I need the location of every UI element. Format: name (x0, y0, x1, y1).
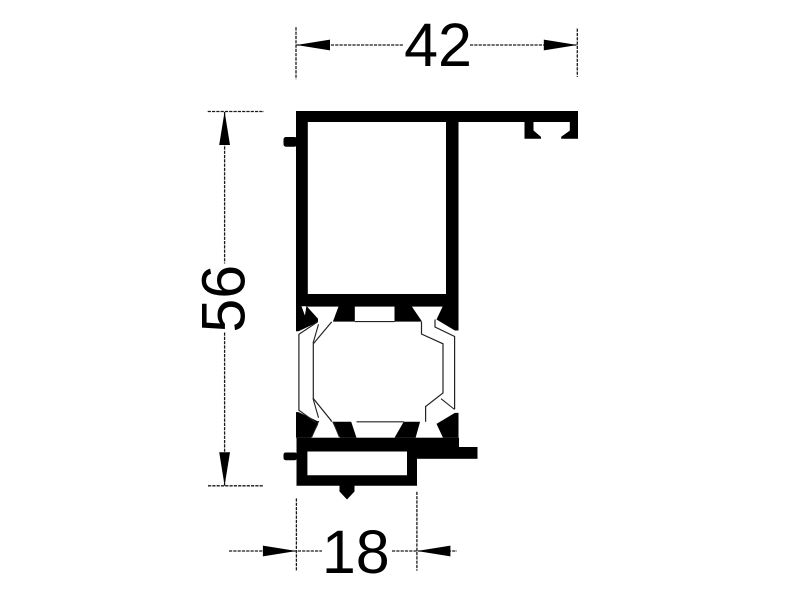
svg-text:18: 18 (322, 518, 390, 586)
svg-text:42: 42 (404, 11, 472, 79)
svg-text:56: 56 (189, 265, 257, 333)
